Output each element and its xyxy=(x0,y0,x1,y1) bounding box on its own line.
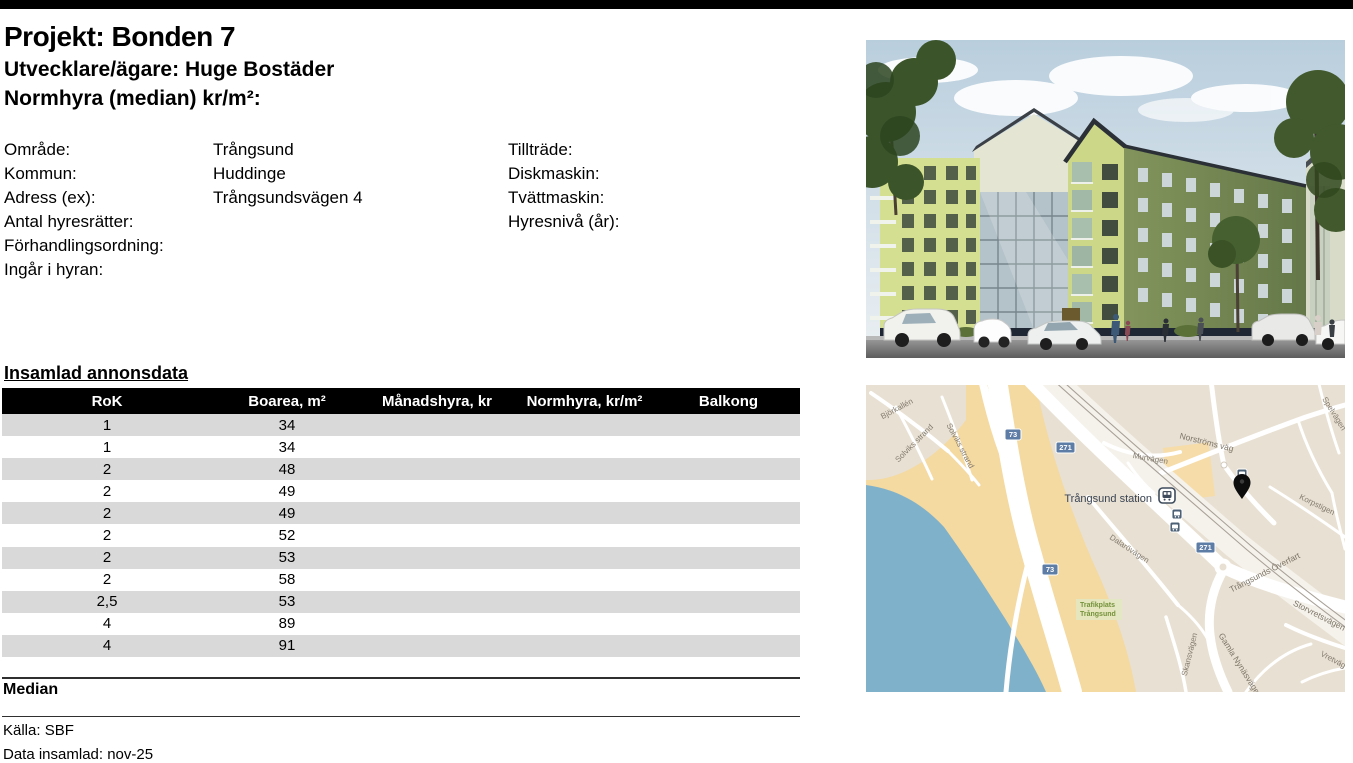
info-label: Ingår i hyran: xyxy=(4,260,103,279)
info-label: Kommun: xyxy=(4,164,77,183)
cell-rok: 2,5 xyxy=(2,593,212,610)
route-badge-73-south: 73 xyxy=(1042,564,1058,575)
page: Projekt: Bonden 7 Utvecklare/ägare: Huge… xyxy=(0,0,1353,763)
cell-boarea: 34 xyxy=(212,417,362,434)
table-row: 248 xyxy=(2,458,800,480)
info-label: Adress (ex): xyxy=(4,188,96,207)
info-row-hyresniva: Hyresnivå (år): xyxy=(508,212,619,236)
divider-line xyxy=(2,677,800,679)
location-map-image: Björkallén Solviks strand Solviks strand… xyxy=(866,385,1345,692)
table-row: 258 xyxy=(2,569,800,591)
cell-boarea: 53 xyxy=(212,593,362,610)
building-rendering-image xyxy=(866,40,1345,358)
collected-date-line: Data insamlad: nov-25 xyxy=(3,746,153,763)
table-row: 252 xyxy=(2,524,800,546)
bus-stop-icon xyxy=(1170,522,1180,532)
median-label: Median xyxy=(3,681,58,699)
col-header-boarea: Boarea, m² xyxy=(212,393,362,410)
cell-boarea: 89 xyxy=(212,615,362,632)
table-body: 134 134 248 249 249 252 253 258 2,553 48… xyxy=(2,414,800,657)
col-header-balkong: Balkong xyxy=(657,393,800,410)
page-title: Projekt: Bonden 7 xyxy=(4,21,235,53)
info-row-kommun: Kommun: Huddinge xyxy=(4,164,77,188)
cell-boarea: 52 xyxy=(212,527,362,544)
table-header-row: RoK Boarea, m² Månadshyra, kr Normhyra, … xyxy=(2,388,800,414)
train-station-icon xyxy=(1159,488,1175,503)
table-row: 491 xyxy=(2,635,800,657)
table-row: 134 xyxy=(2,414,800,436)
cell-rok: 1 xyxy=(2,439,212,456)
info-row-diskmaskin: Diskmaskin: xyxy=(508,164,600,188)
cell-boarea: 49 xyxy=(212,505,362,522)
location-pin-center xyxy=(1240,479,1244,483)
cell-rok: 1 xyxy=(2,417,212,434)
cell-rok: 2 xyxy=(2,505,212,522)
info-row-adress: Adress (ex): Trångsundsvägen 4 xyxy=(4,188,96,212)
cell-boarea: 91 xyxy=(212,637,362,654)
info-label: Förhandlingsordning: xyxy=(4,236,164,255)
table-row: 249 xyxy=(2,480,800,502)
cell-rok: 4 xyxy=(2,615,212,632)
route-badge-73: 73 xyxy=(1005,429,1021,440)
info-row-omrade: Område: Trångsund xyxy=(4,140,70,164)
info-row-antal-hyresratter: Antal hyresrätter: xyxy=(4,212,133,236)
info-value: Trångsundsvägen 4 xyxy=(213,188,363,208)
top-border-bar xyxy=(0,0,1353,9)
station-label: Trångsund station xyxy=(1064,493,1152,505)
info-row-forhandlingsordning: Förhandlingsordning: xyxy=(4,236,164,260)
cell-boarea: 48 xyxy=(212,461,362,478)
developer-line: Utvecklare/ägare: Huge Bostäder xyxy=(4,58,334,82)
roundabout xyxy=(1215,559,1232,576)
col-header-normhyra: Normhyra, kr/m² xyxy=(512,393,657,410)
cell-boarea: 34 xyxy=(212,439,362,456)
col-header-rok: RoK xyxy=(2,393,212,410)
col-header-manadshyra: Månadshyra, kr xyxy=(362,393,512,410)
route-badge-271: 271 xyxy=(1056,442,1075,453)
cell-boarea: 49 xyxy=(212,483,362,500)
svg-text:271: 271 xyxy=(1199,543,1212,552)
cell-rok: 2 xyxy=(2,461,212,478)
divider-line xyxy=(2,716,800,717)
cell-rok: 2 xyxy=(2,483,212,500)
info-row-ingar-i-hyran: Ingår i hyran: xyxy=(4,260,103,284)
normhyra-line: Normhyra (median) kr/m²: xyxy=(4,87,261,111)
info-row-tvattmaskin: Tvättmaskin: xyxy=(508,188,604,212)
cell-boarea: 58 xyxy=(212,571,362,588)
table-row: 249 xyxy=(2,502,800,524)
table-row: 489 xyxy=(2,613,800,635)
cell-rok: 4 xyxy=(2,637,212,654)
svg-text:73: 73 xyxy=(1009,430,1017,439)
table-row: 2,553 xyxy=(2,591,800,613)
info-value: Trångsund xyxy=(213,140,294,160)
info-label: Område: xyxy=(4,140,70,159)
cell-rok: 2 xyxy=(2,527,212,544)
cell-rok: 2 xyxy=(2,571,212,588)
route-badge-271-south: 271 xyxy=(1196,542,1215,553)
cell-boarea: 53 xyxy=(212,549,362,566)
road-junction xyxy=(1221,462,1227,468)
source-line: Källa: SBF xyxy=(3,722,74,739)
info-row-tilltrade: Tillträde: xyxy=(508,140,573,164)
section-title-annonsdata: Insamlad annonsdata xyxy=(4,363,188,384)
cell-rok: 2 xyxy=(2,549,212,566)
info-value: Huddinge xyxy=(213,164,286,184)
bus-stop-icon xyxy=(1172,509,1182,519)
table-row: 134 xyxy=(2,436,800,458)
svg-text:271: 271 xyxy=(1059,443,1072,452)
annonsdata-table: RoK Boarea, m² Månadshyra, kr Normhyra, … xyxy=(2,388,800,657)
svg-text:73: 73 xyxy=(1046,565,1054,574)
info-label: Antal hyresrätter: xyxy=(4,212,133,231)
table-row: 253 xyxy=(2,547,800,569)
